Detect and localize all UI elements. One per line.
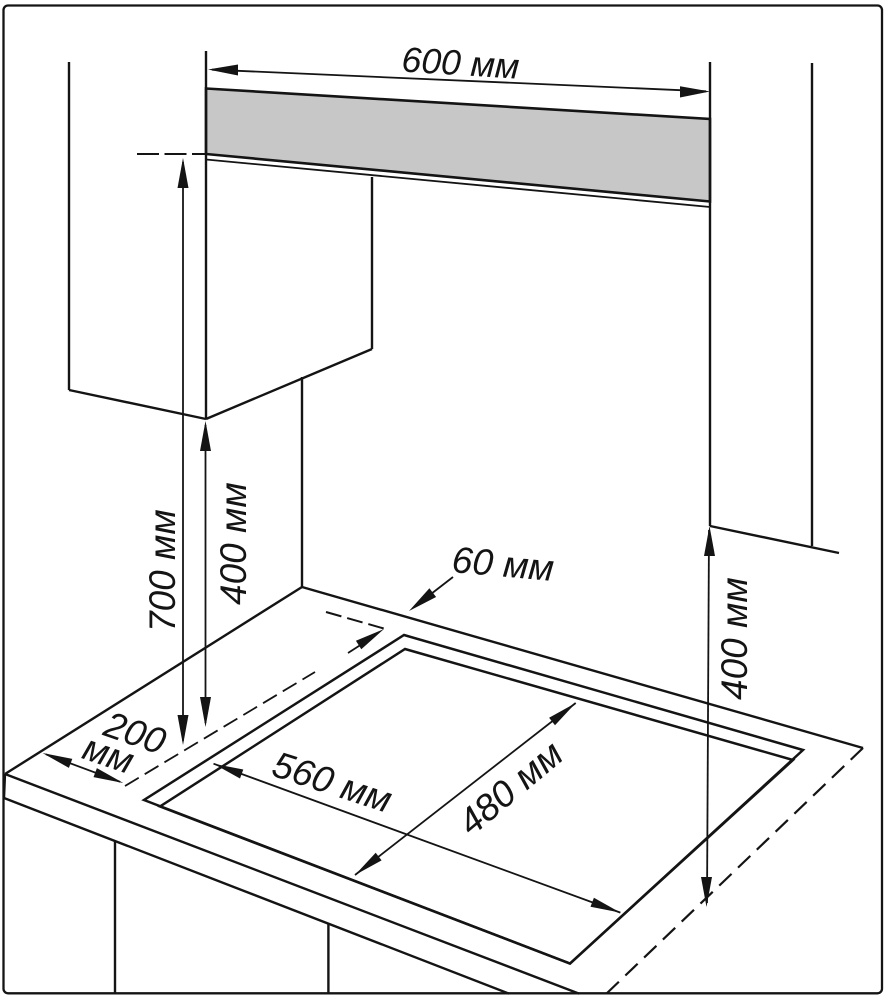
svg-text:480 мм: 480 мм	[450, 733, 570, 843]
svg-text:60 мм: 60 мм	[450, 539, 555, 589]
svg-text:700 мм: 700 мм	[142, 509, 183, 632]
svg-text:600 мм: 600 мм	[401, 40, 521, 87]
svg-text:400 мм: 400 мм	[714, 577, 755, 700]
svg-text:560 мм: 560 мм	[268, 744, 397, 821]
svg-text:400 мм: 400 мм	[213, 482, 254, 605]
